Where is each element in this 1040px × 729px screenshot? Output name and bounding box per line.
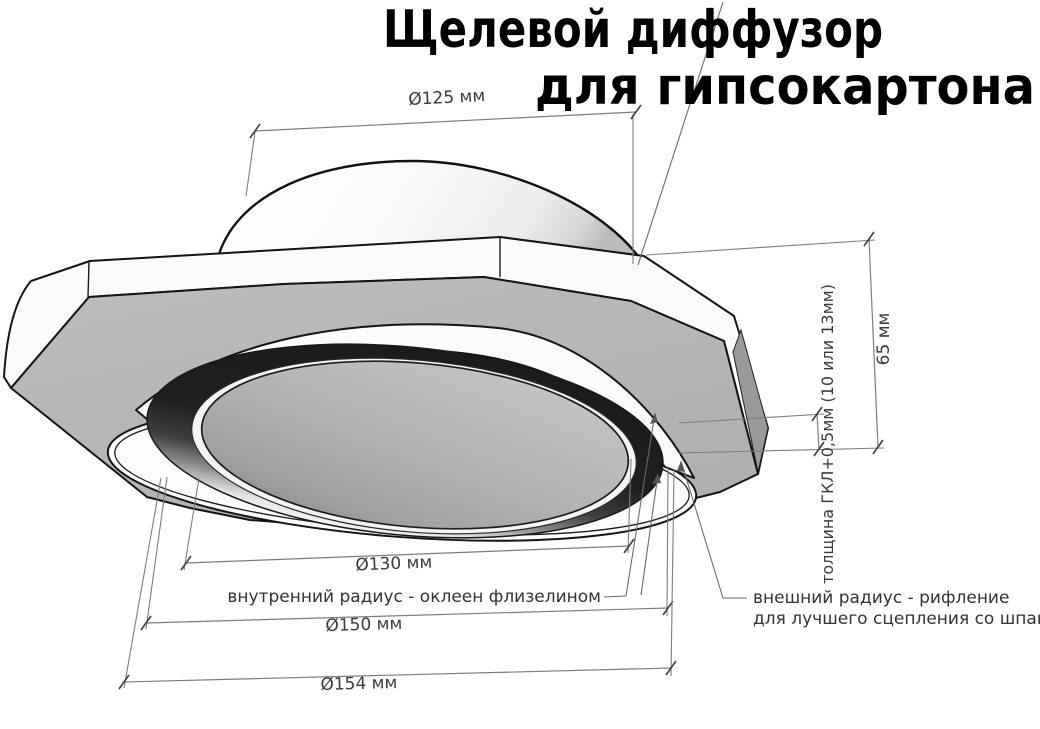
- inner-radius-label: внутренний радиус - оклеен флизелином: [227, 587, 601, 607]
- dim-label-65: 65 мм: [874, 313, 894, 366]
- outer-radius-label-line1: внешний радиус - рифление: [753, 588, 1009, 608]
- dim-label-150: Ø150 мм: [325, 614, 402, 636]
- technical-drawing-page: Ø125 мм 65 мм толщина ГКЛ+0,5мм (10 или …: [0, 0, 1040, 729]
- plate-corner-edge-left: [88, 262, 89, 297]
- title-line1: Щелевой диффузор: [383, 0, 883, 60]
- dim-label-thickness: толщина ГКЛ+0,5мм (10 или 13мм): [818, 284, 837, 584]
- dim-label-154: Ø154 мм: [320, 673, 397, 695]
- title-line2: для гипсокартона: [535, 57, 1035, 117]
- dim-label-130: Ø130 мм: [355, 553, 433, 576]
- dim-label-125: Ø125 мм: [408, 86, 486, 110]
- diffuser-3d-view: [4, 161, 768, 559]
- diffuser-technical-drawing: Ø125 мм 65 мм толщина ГКЛ+0,5мм (10 или …: [0, 0, 1040, 729]
- outer-radius-label-line2: для лучшего сцепления со шпаклёвкой: [753, 609, 1040, 629]
